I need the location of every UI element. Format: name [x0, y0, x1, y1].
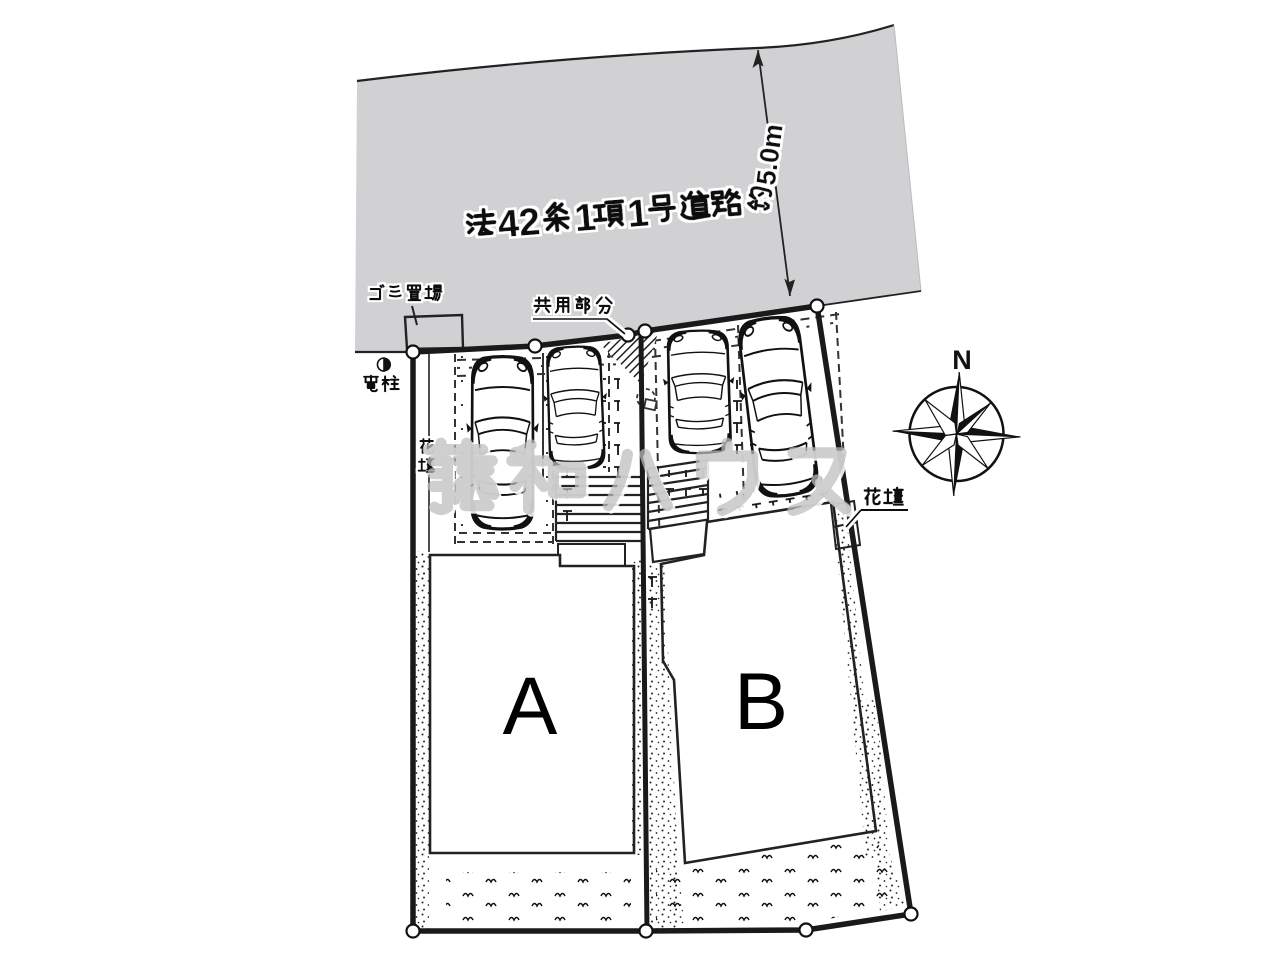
- svg-text:1: 1: [626, 192, 650, 236]
- svg-text:1: 1: [573, 197, 597, 241]
- svg-text:B: B: [734, 657, 788, 747]
- svg-text:N: N: [952, 345, 972, 375]
- svg-text:42: 42: [496, 201, 542, 246]
- svg-text:A: A: [503, 661, 558, 752]
